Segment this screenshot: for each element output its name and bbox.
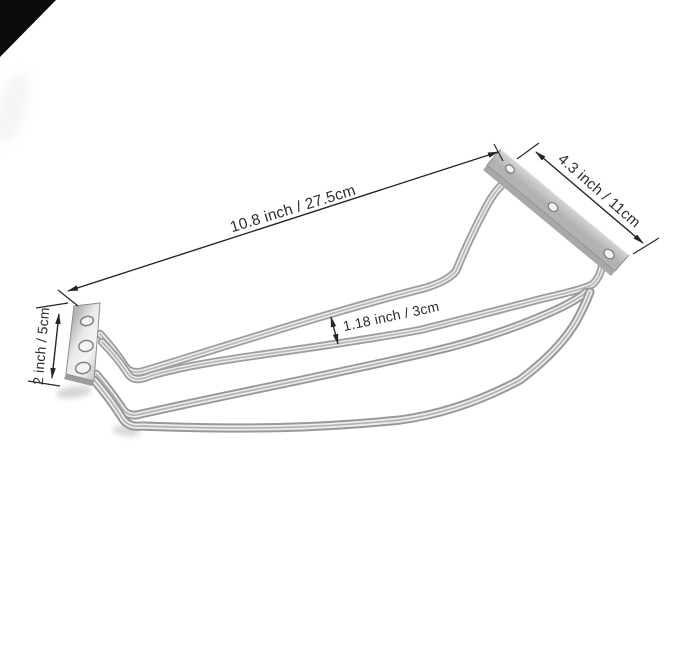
wine-glass-rack-rails — [94, 184, 602, 428]
dimension-label-height: 2 inch / 5cm — [30, 307, 53, 386]
length-dimension-line — [68, 152, 498, 291]
photo-shadows — [0, 68, 141, 438]
corner-fold-triangle — [0, 0, 56, 57]
bracket-extension-tick-end — [633, 238, 659, 254]
left-mounting-plate — [64, 303, 100, 386]
corner-shadow — [0, 68, 36, 149]
bracket-extension-tick-start — [517, 143, 539, 159]
product-image: 10.8 inch / 27.5cm 4.3 inch / 11cm 2 inc… — [0, 0, 679, 667]
plate-shadow — [55, 384, 92, 401]
stemware-rack-scene: 10.8 inch / 27.5cm 4.3 inch / 11cm 2 inc… — [0, 0, 679, 667]
height-dimension-line — [52, 314, 59, 378]
dimension-annotations — [28, 143, 659, 386]
dimension-label-length: 10.8 inch / 27.5cm — [228, 182, 358, 236]
